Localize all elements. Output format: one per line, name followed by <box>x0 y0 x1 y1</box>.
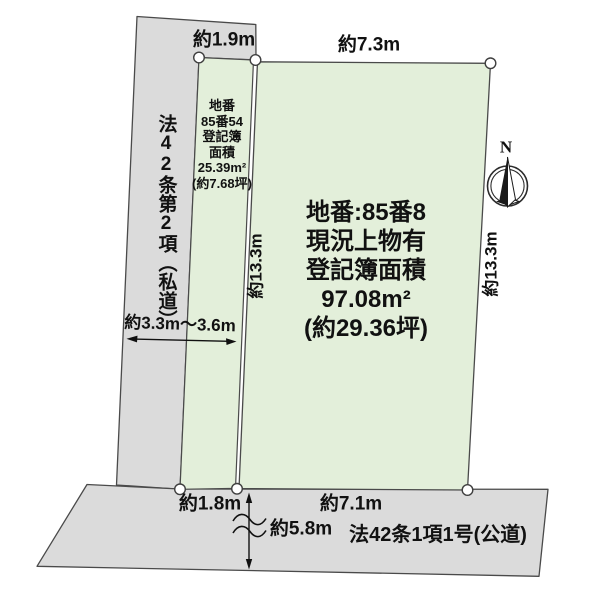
compass-icon <box>488 157 528 207</box>
parcel-85-8-text-line: 地番:85番8 <box>286 198 446 227</box>
dim-road-width-label: 約3.3m〜3.6m <box>124 314 236 336</box>
boundary-point-marker <box>462 485 473 496</box>
parcel-85-54-text-line: (約7.68坪) <box>162 176 282 192</box>
dim-top-small-label: 約1.9m <box>193 31 255 52</box>
parcel-85-8-text-line: (約29.36坪) <box>286 314 446 343</box>
parcel-85-54-text-line: 面積 <box>162 145 282 161</box>
dim-left-depth-label: 約13.3m <box>248 233 267 298</box>
parcel-85-54-text-line: 85番54 <box>162 114 282 130</box>
parcel-85-8-text-line: 登記簿面積 <box>286 256 446 285</box>
compass-north-label: N <box>500 139 512 158</box>
boundary-point-marker <box>250 55 261 66</box>
compass-needle-right <box>508 157 516 207</box>
dim-bottom-large-label: 約7.1m <box>320 495 382 516</box>
public-road-label: 法42条1項1号(公道) <box>349 524 527 546</box>
dim-right-depth-label: 約13.3m <box>483 231 502 296</box>
parcel-85-8-text-line: 現況上物有 <box>286 227 446 256</box>
parcel-85-54-text: 地番 85番54 登記簿 面積 25.39m² (約7.68坪) <box>162 98 282 191</box>
parcel-85-8-text: 地番:85番8 現況上物有 登記簿面積 97.08m² (約29.36坪) <box>286 198 446 343</box>
boundary-point-marker <box>232 484 243 495</box>
parcel-85-8-text-line: 97.08m² <box>286 285 446 314</box>
dim-top-large-label: 約7.3m <box>338 36 400 57</box>
boundary-point-marker <box>194 52 205 63</box>
parcel-85-54-text-line: 地番 <box>162 98 282 114</box>
boundary-point-marker <box>485 58 496 69</box>
parcel-85-54-text-line: 25.39m² <box>162 160 282 176</box>
dim-road-span-label: 約5.8m <box>270 520 332 541</box>
dim-bottom-small-label: 約1.8m <box>179 495 241 516</box>
land-plot-diagram: 約1.9m 約7.3m 約13.3m 約13.3m 約3.3m〜3.6m 約1.… <box>0 0 600 600</box>
parcel-85-54-text-line: 登記簿 <box>162 129 282 145</box>
compass-needle-left <box>500 157 508 207</box>
